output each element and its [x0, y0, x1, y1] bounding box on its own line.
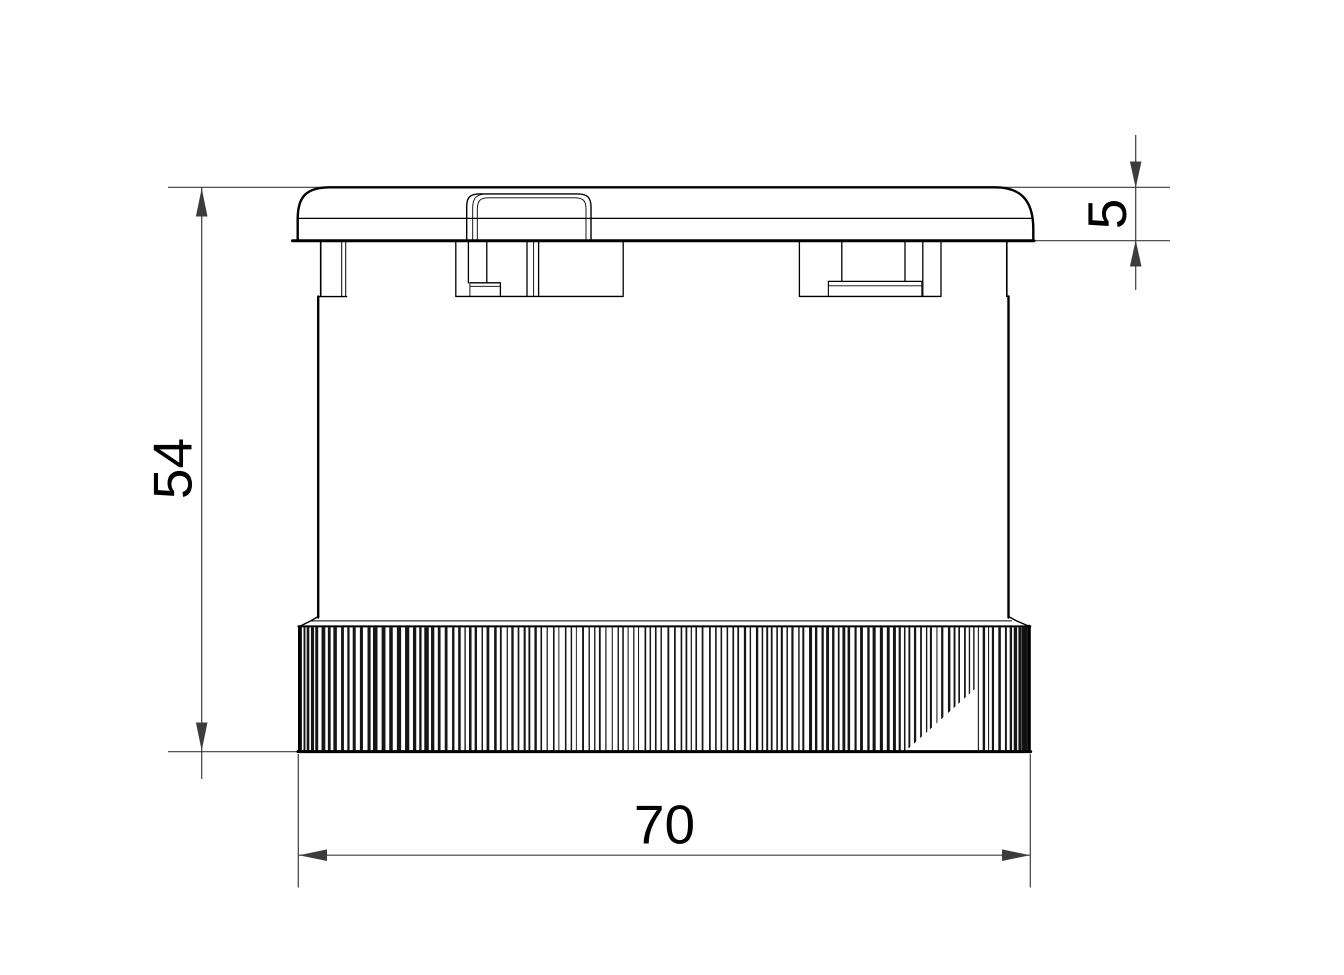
mounting-tab	[467, 194, 591, 240]
knurl-texture	[300, 627, 1022, 751]
body	[299, 241, 1029, 627]
arrowhead-down	[1130, 162, 1142, 188]
arrowhead-up	[196, 188, 208, 216]
dimension-label-cap: 5	[1076, 199, 1138, 230]
arrowhead-right	[1002, 849, 1030, 861]
left-clip	[318, 241, 346, 297]
knurled-ring	[298, 626, 1031, 751]
arrowhead-left	[299, 849, 327, 861]
body-right-shoulder	[1009, 617, 1030, 627]
drawing-canvas: 54 5 70	[0, 0, 1344, 975]
knurl-right-dark-band	[1022, 627, 1028, 751]
technical-drawing: 54 5 70	[0, 0, 1344, 975]
tab-outer	[467, 194, 591, 240]
dimension-label-height: 54	[142, 438, 204, 499]
right-clip	[799, 241, 941, 297]
arrowhead-down	[196, 723, 208, 751]
body-left-shoulder	[299, 617, 318, 627]
dimension-overall-width: 70	[298, 754, 1030, 888]
top-cap	[293, 187, 1035, 240]
center-clip	[456, 241, 623, 297]
dimension-cap-height: 5	[1004, 135, 1170, 290]
dimension-label-width: 70	[634, 794, 695, 856]
cap-outline	[298, 187, 1034, 240]
arrowhead-up	[1130, 240, 1142, 266]
latch-box	[470, 283, 501, 296]
